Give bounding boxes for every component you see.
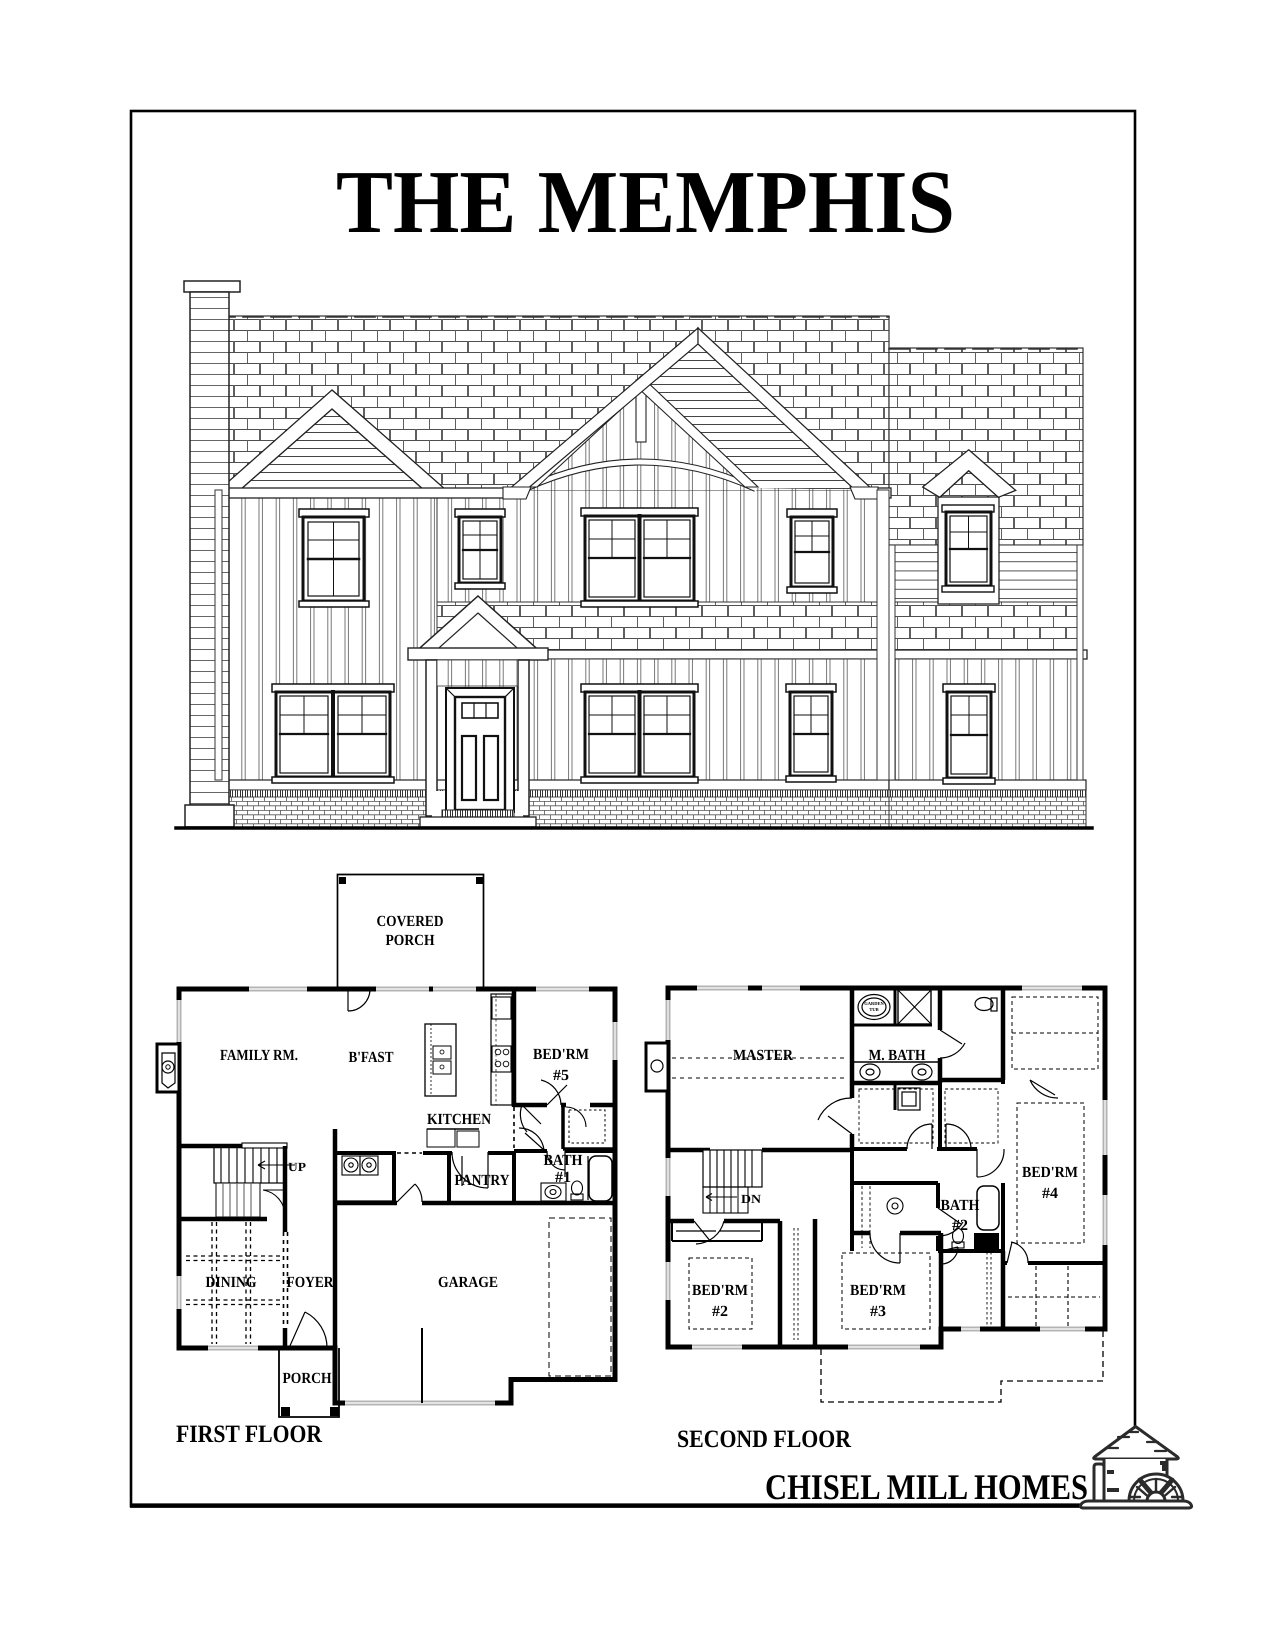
svg-text:CHISEL MILL HOMES: CHISEL MILL HOMES — [765, 1467, 1088, 1507]
svg-text:#3: #3 — [870, 1303, 886, 1320]
svg-text:#2: #2 — [952, 1217, 968, 1234]
svg-text:THE MEMPHIS: THE MEMPHIS — [336, 153, 955, 252]
svg-text:M. BATH: M. BATH — [869, 1047, 926, 1064]
svg-text:FAMILY RM.: FAMILY RM. — [220, 1047, 298, 1064]
svg-text:BATH: BATH — [544, 1152, 583, 1169]
svg-text:GARDEN: GARDEN — [864, 1001, 884, 1006]
svg-text:PANTRY: PANTRY — [455, 1172, 510, 1189]
svg-text:FIRST FLOOR: FIRST FLOOR — [176, 1421, 323, 1448]
svg-text:BED'RM: BED'RM — [533, 1046, 589, 1063]
svg-text:#4: #4 — [1042, 1185, 1058, 1202]
svg-text:BED'RM: BED'RM — [692, 1282, 748, 1299]
svg-text:GARAGE: GARAGE — [438, 1274, 498, 1291]
svg-text:FOYER: FOYER — [287, 1274, 335, 1291]
svg-text:BED'RM: BED'RM — [850, 1282, 906, 1299]
svg-text:#5: #5 — [553, 1067, 569, 1084]
svg-text:B'FAST: B'FAST — [349, 1049, 395, 1066]
svg-text:TUB: TUB — [869, 1007, 878, 1012]
svg-text:DINING: DINING — [206, 1274, 257, 1291]
svg-text:BED'RM: BED'RM — [1022, 1164, 1078, 1181]
svg-text:KITCHEN: KITCHEN — [427, 1111, 491, 1128]
svg-text:MASTER: MASTER — [733, 1047, 794, 1064]
svg-text:PORCH: PORCH — [386, 932, 435, 949]
svg-text:UP: UP — [288, 1160, 306, 1174]
svg-text:BATH: BATH — [941, 1197, 980, 1214]
svg-text:#2: #2 — [712, 1303, 728, 1320]
svg-text:DN: DN — [741, 1192, 761, 1206]
svg-text:COVERED: COVERED — [377, 913, 444, 930]
svg-text:SECOND FLOOR: SECOND FLOOR — [677, 1426, 852, 1453]
svg-text:PORCH: PORCH — [283, 1370, 332, 1387]
svg-text:#1: #1 — [555, 1169, 571, 1186]
